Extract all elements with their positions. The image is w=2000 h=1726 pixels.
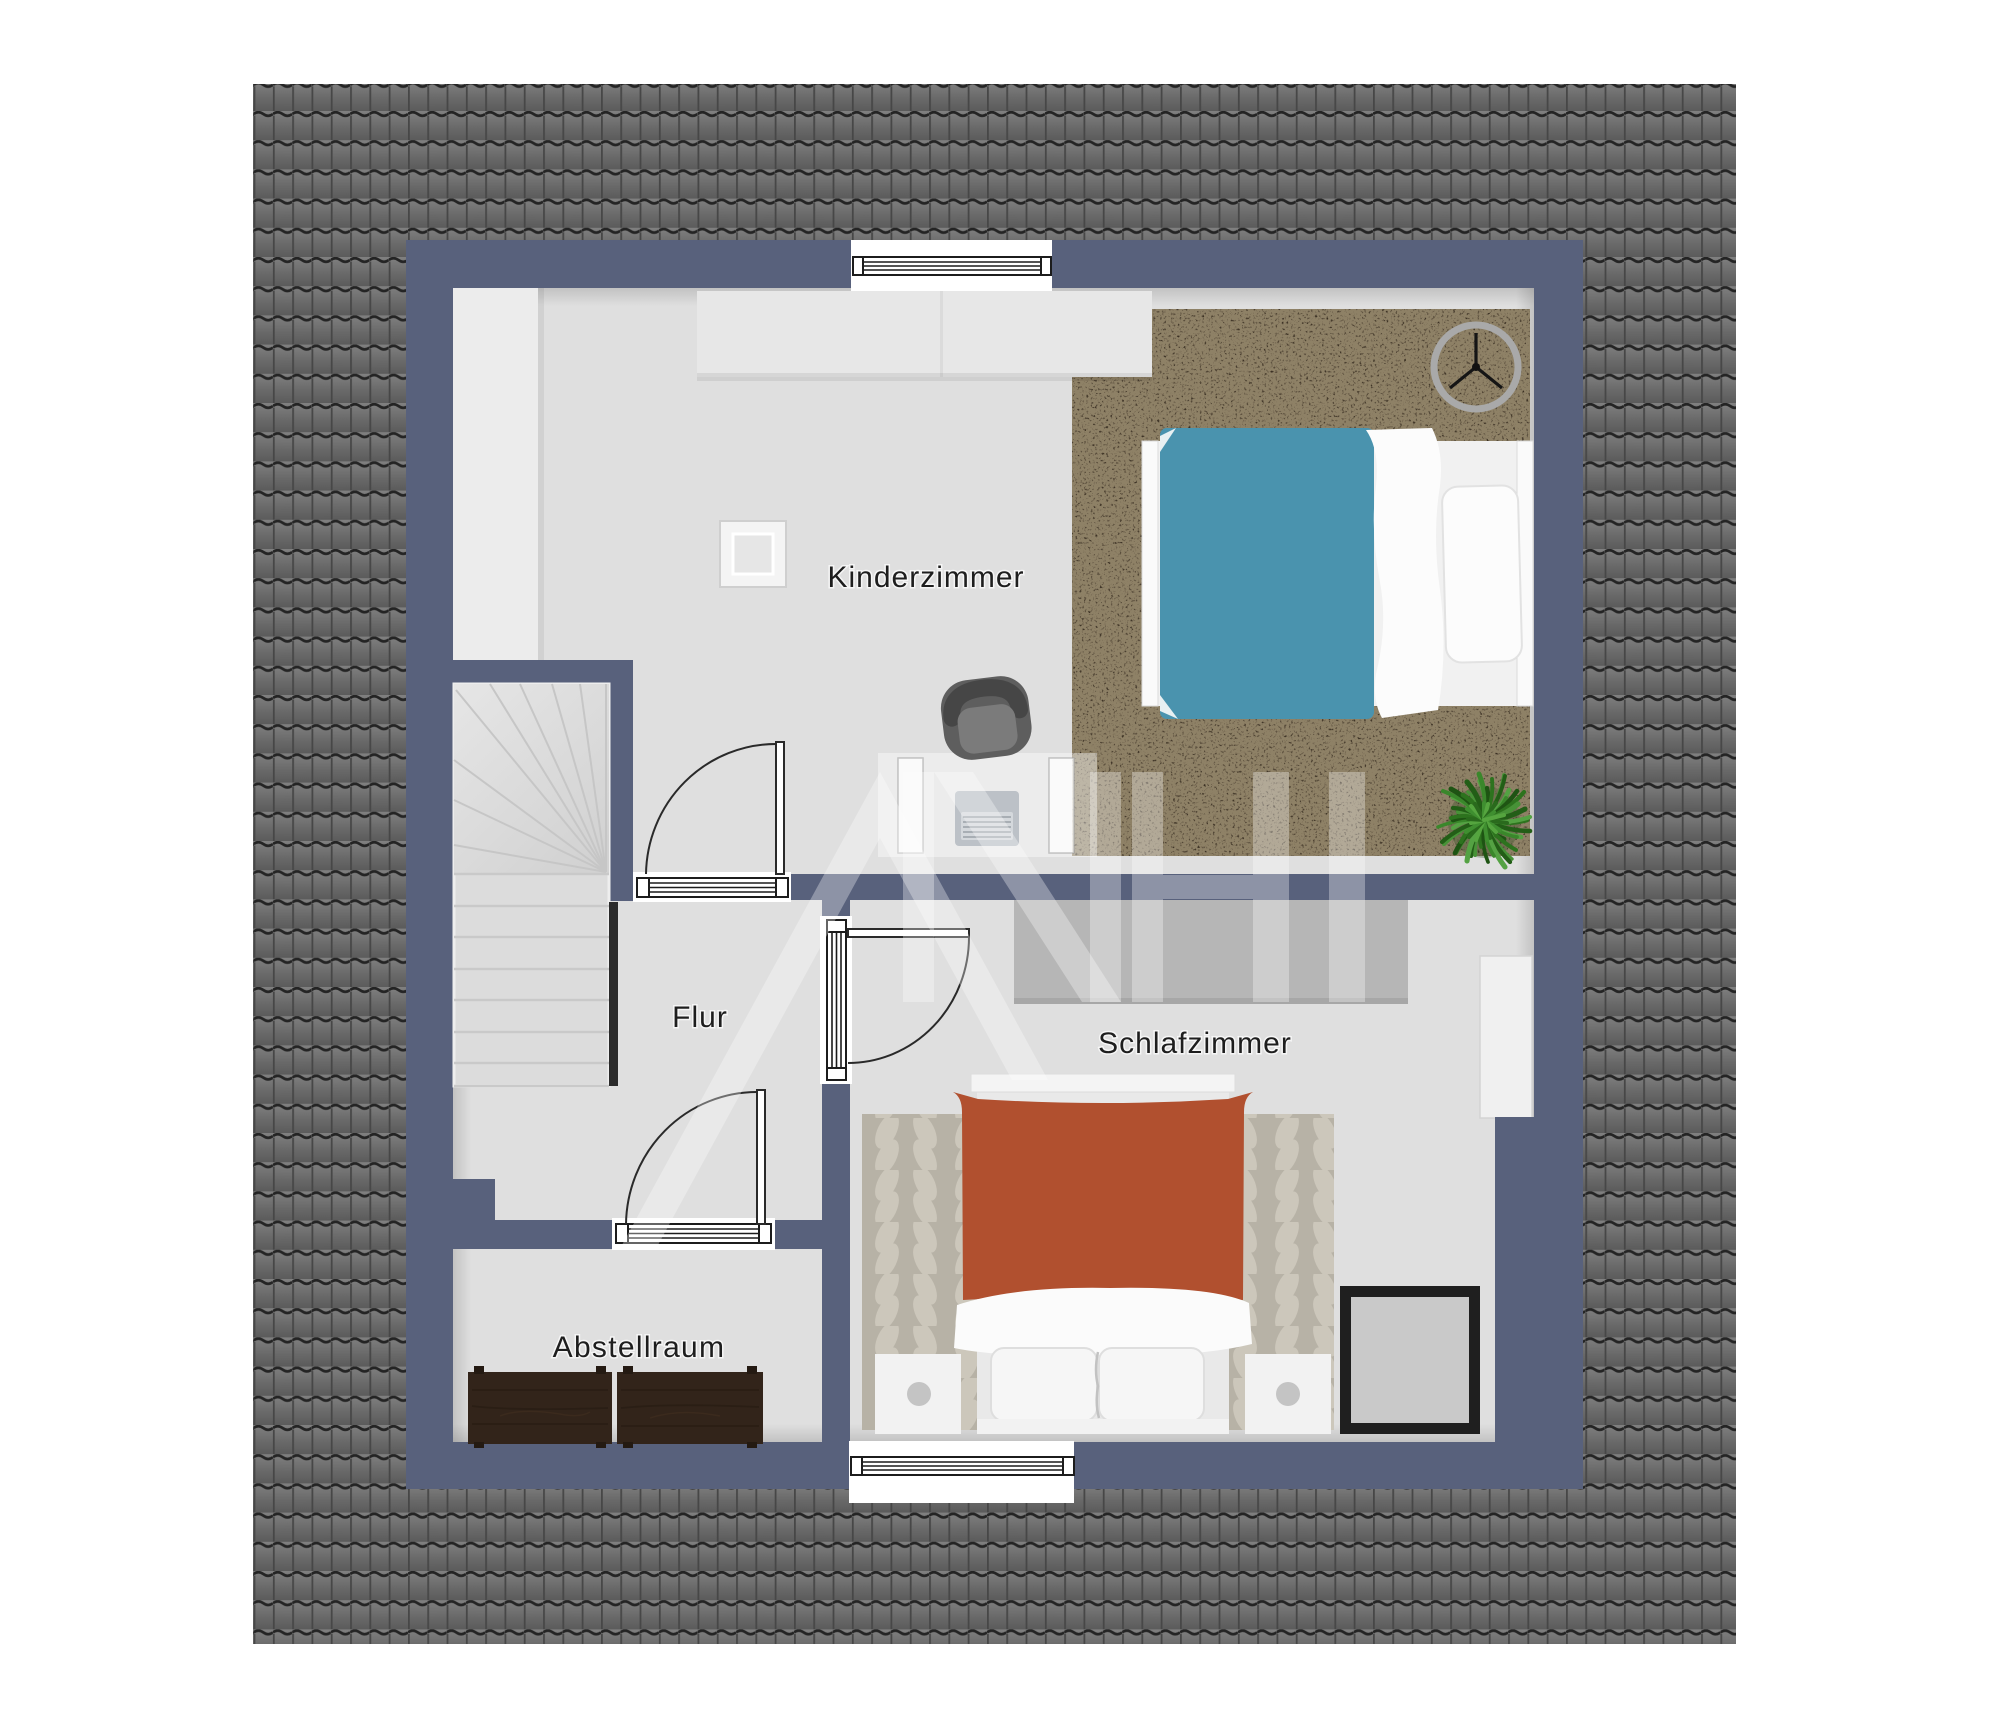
svg-text:Abstellraum: Abstellraum bbox=[553, 1331, 726, 1364]
svg-text:Kinderzimmer: Kinderzimmer bbox=[827, 561, 1024, 594]
svg-text:Schlafzimmer: Schlafzimmer bbox=[1098, 1027, 1292, 1060]
svg-text:Flur: Flur bbox=[672, 1001, 728, 1034]
